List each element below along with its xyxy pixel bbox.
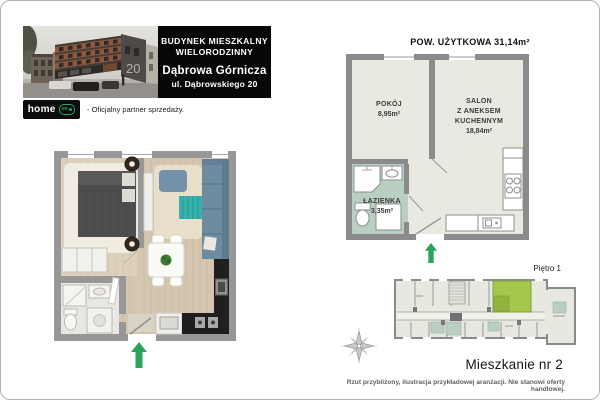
kitchen-sink [160,317,178,329]
pouf [159,170,187,192]
apartment-number-label: Mieszkanie nr 2 [381,357,563,372]
room-name: POKÓJ [354,100,424,110]
shower [63,285,86,306]
building-photo: 20 [23,26,158,98]
entrance-arrow-schematic [424,243,438,263]
room-area: 3,35m² [352,208,412,215]
entrance-arrow-detailed [131,342,147,368]
usable-area-title: POW. UŻYTKOWA 31,14m² [370,37,570,47]
floor-overview-plan [393,276,577,348]
corridor [397,312,545,320]
logo-on-badge: on [59,104,76,115]
logo-badge-text: on [62,107,68,112]
building-number-label: 20 [126,61,140,76]
floor-label: Piętro 1 [471,264,561,273]
dresser [62,248,107,272]
project-type-line1: BUDYNEK MIESZKALNY [161,36,268,47]
homeon-logo: home on [23,100,80,119]
disclaimer-text: Rzut przybliżony, ilustracja przykładowe… [319,379,565,393]
furnished-floor-plan [54,151,236,341]
flyer-canvas: 20 BUDYNEK MIESZKALNY WIELORODZINNY Dąbr… [0,0,600,400]
bedside-speaker [125,237,139,251]
bedside-speaker [125,157,139,171]
main-building-dark-wing: 20 [121,34,146,83]
room-name: ŁAZIENKA [352,197,412,207]
partner-text: - Oficjalny partner sprzedaży. [87,105,184,114]
room-label-lazienka: ŁAZIENKA 3,35m² [352,197,412,215]
room-label-pokoj: POKÓJ 8,95m² [354,100,424,118]
entry-mat [128,314,154,332]
logo-brand-text: home [28,104,56,115]
compass-rose-icon [341,328,377,364]
plant [161,255,172,266]
room-area: 18,84m² [434,128,524,135]
wardrobe [144,173,153,231]
sofa [202,159,229,259]
highlighted-unit [493,281,531,312]
project-title-box: BUDYNEK MIESZKALNY WIELORODZINNY Dąbrowa… [158,26,271,98]
project-type-line2: WIELORODZINNY [176,47,253,58]
elevator [450,313,462,321]
staircase [449,282,465,304]
logo-badge-dot-icon [69,108,72,111]
room-label-salon: SALON Z ANEKSEM KUCHENNYM 18,84m² [434,97,524,135]
partner-logo-row: home on - Oficjalny partner sprzedaży. [23,100,184,119]
project-street: ul. Dąbrowskiego 20 [172,79,258,89]
room-area: 8,95m² [354,111,424,118]
project-city: Dąbrowa Górnicza [162,65,266,77]
room-name: SALON Z ANEKSEM KUCHENNYM [434,97,524,127]
